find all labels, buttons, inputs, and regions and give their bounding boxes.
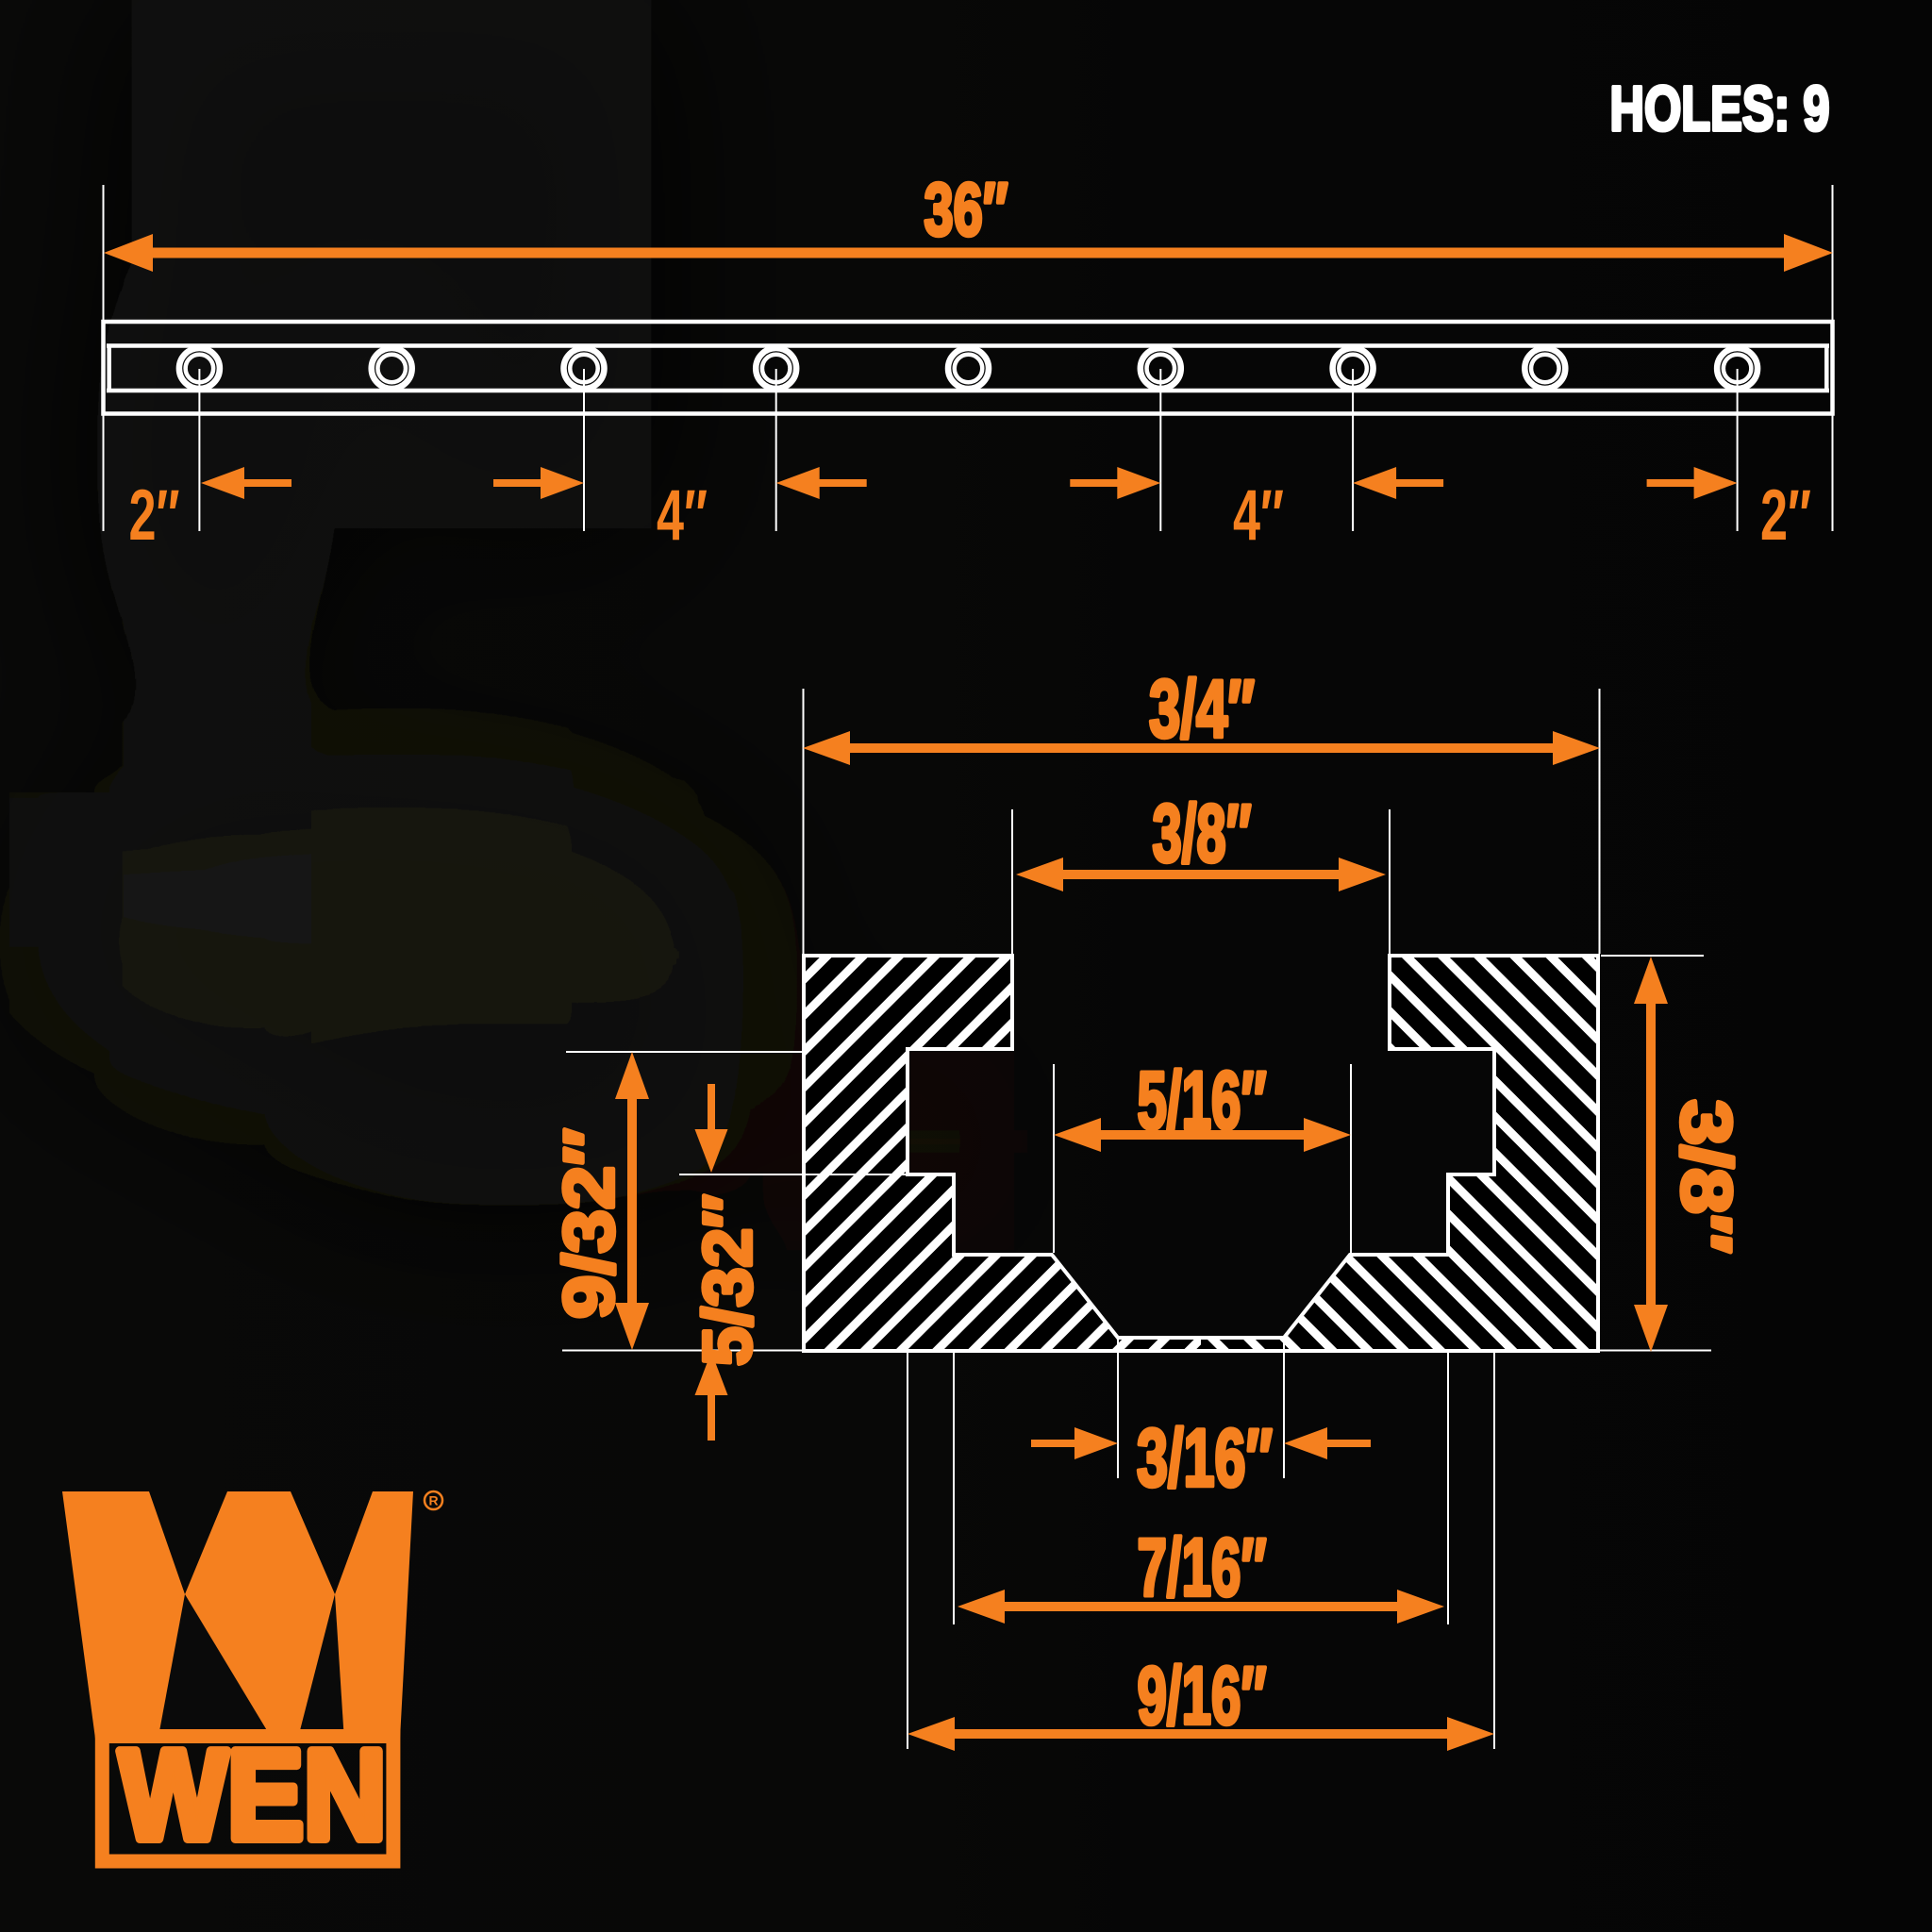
svg-text:9/32″: 9/32″: [549, 1128, 628, 1319]
svg-text:WEN: WEN: [120, 1724, 387, 1866]
svg-text:4″: 4″: [1233, 475, 1284, 556]
svg-text:3/16″: 3/16″: [1137, 1413, 1273, 1504]
svg-text:2″: 2″: [129, 475, 180, 556]
svg-text:5/16″: 5/16″: [1138, 1056, 1267, 1146]
svg-text:9/16″: 9/16″: [1138, 1651, 1267, 1741]
svg-text:7/16″: 7/16″: [1138, 1523, 1267, 1613]
svg-text:R: R: [428, 1493, 438, 1508]
svg-text:3/4″: 3/4″: [1149, 664, 1255, 755]
svg-text:5/32″: 5/32″: [691, 1194, 766, 1366]
svg-text:3/8″: 3/8″: [1153, 789, 1252, 879]
svg-text:HOLES: 9: HOLES: 9: [1610, 74, 1830, 144]
svg-text:4″: 4″: [657, 475, 708, 556]
svg-text:3/8″: 3/8″: [1667, 1100, 1746, 1254]
svg-text:2″: 2″: [1760, 475, 1811, 556]
svg-text:36″: 36″: [924, 167, 1008, 251]
